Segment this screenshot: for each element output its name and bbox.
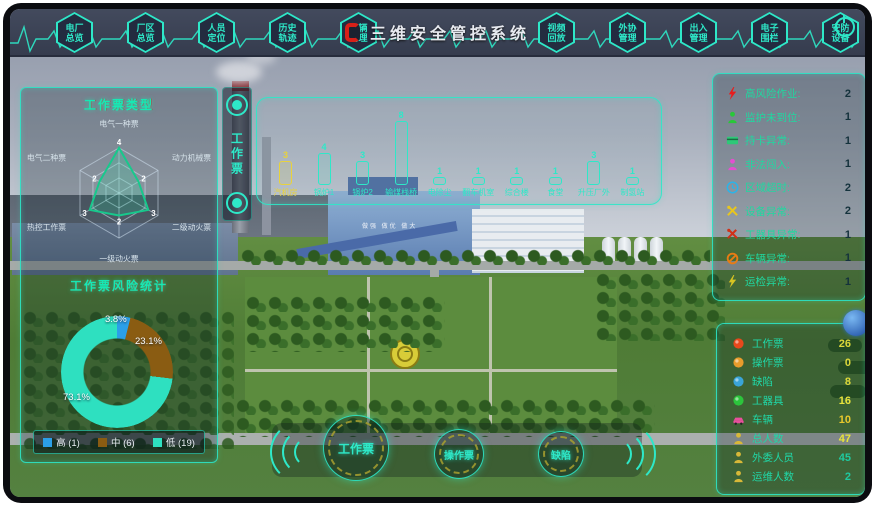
nav-item-left-4[interactable]: 车辆管理: [340, 12, 377, 53]
globe-icon: [843, 310, 865, 336]
nav-item-label: 人员: [207, 23, 225, 33]
risk-donut-chart: 3.8% 23.1% 73.1%: [61, 316, 173, 428]
radar-value: 3: [82, 209, 87, 218]
radar-value: 2: [141, 175, 146, 184]
nav-item-label: 外协: [618, 23, 636, 33]
nav-item-label: 轨迹: [278, 33, 296, 43]
legend-label: 中 (6): [111, 435, 135, 449]
nav-item-inner: 车辆管理: [342, 14, 375, 51]
radar-axis-label: 动力机械票: [172, 153, 211, 163]
alarm-label: 工器具异常:: [745, 227, 800, 242]
dot-icon: [731, 356, 745, 370]
tools-icon: [725, 228, 739, 242]
bar-rect: [549, 177, 562, 185]
bar-rect: [510, 177, 523, 185]
radar-value: 3: [151, 209, 156, 218]
bar-value: 1: [498, 166, 535, 176]
tab-circle-icon: [226, 192, 248, 214]
alarm-row: 高风险作业:2: [725, 82, 855, 106]
area-bar-chart-panel: 3汽机房4锅炉13锅炉28输煤栈桥1电除尘1翻车机室1综合楼1食堂3升压厂外1制…: [256, 97, 662, 205]
tab-label: 工作票: [229, 132, 246, 177]
alarm-row: 设备异常:2: [725, 200, 855, 224]
nav-item-left-1[interactable]: 厂区总览: [127, 12, 164, 53]
stats-label: 操作票: [752, 355, 784, 370]
nav-item-inner: 出入管理: [682, 14, 715, 51]
legend-swatch: [153, 438, 162, 447]
bolt-icon: [725, 275, 739, 289]
bar-value: 1: [537, 166, 574, 176]
area-bar: 3汽机房: [267, 150, 304, 198]
alarm-count: 1: [845, 111, 855, 123]
nav-item-inner: 厂区总览: [129, 14, 162, 51]
person-icon: [725, 157, 739, 171]
nav-item-inner: 外协管理: [611, 14, 644, 51]
alarm-count: 1: [845, 135, 855, 147]
nav-item-inner: 电子围栏: [753, 14, 786, 51]
stats-count: 45: [839, 452, 855, 464]
stats-count: 26: [839, 338, 855, 350]
stats-label: 车辆: [752, 412, 773, 427]
alarm-row: 运检异常:1: [725, 270, 855, 294]
nav-item-right-1[interactable]: 外协管理: [609, 12, 646, 53]
stats-row: 运维人数2: [731, 467, 855, 486]
arc-decoration: [594, 423, 656, 485]
tab-circle-icon: [226, 94, 248, 116]
radar-value: 2: [117, 217, 122, 226]
nav-item-label: 管理: [689, 33, 707, 43]
dot-icon: [731, 375, 745, 389]
bar-value: 3: [344, 150, 381, 160]
nav-item-inner: 人员定位: [200, 14, 233, 51]
defect-button[interactable]: 缺陷: [538, 431, 584, 477]
alarm-row: 工器具异常:1: [725, 223, 855, 247]
area-bars: 3汽机房4锅炉13锅炉28输煤栈桥1电除尘1翻车机室1综合楼1食堂3升压厂外1制…: [267, 110, 651, 198]
tree-row: [245, 294, 445, 352]
legend-swatch: [43, 438, 52, 447]
alarm-label: 车辆异常:: [745, 251, 790, 266]
radar-value: 4: [117, 138, 122, 147]
stats-label: 工器具: [752, 393, 784, 408]
alarm-count: 1: [845, 252, 855, 264]
nav-left-group: 电厂总览厂区总览人员定位历史轨迹车辆管理: [56, 12, 377, 53]
alarm-row: 区域超时:2: [725, 176, 855, 200]
nav-item-inner: 历史轨迹: [271, 14, 304, 51]
area-bar: 1翻车机室: [460, 166, 497, 198]
power-icon[interactable]: [835, 17, 855, 37]
stats-label: 工作票: [752, 336, 784, 351]
tree-row: [240, 247, 710, 267]
bar-value: 1: [421, 166, 458, 176]
nav-item-right-3[interactable]: 电子围栏: [751, 12, 788, 53]
nav-item-right-0[interactable]: 视频回放: [538, 12, 575, 53]
alarm-label: 运检异常:: [745, 274, 790, 289]
site-stats-panel: 工作票26操作票0缺陷8工器具16车辆10总人数47外委人员45运维人数2: [716, 323, 865, 495]
alarm-label: 非法闯入:: [745, 157, 790, 172]
bar-rect: [279, 161, 292, 185]
legend-item-0: 高 (1): [43, 435, 80, 449]
area-bar: 3升压厂外: [575, 150, 612, 198]
nav-item-inner: 电厂总览: [58, 14, 91, 51]
stats-row: 工作票26: [731, 334, 855, 353]
nav-item-label: 历史: [278, 23, 296, 33]
radar-axis-label: 电气二种票: [27, 153, 66, 163]
bar-label: 综合楼: [498, 187, 535, 198]
person-icon: [731, 470, 745, 484]
bar-label: 锅炉2: [344, 187, 381, 198]
nav-item-label: 出入: [689, 23, 707, 33]
legend-item-2: 低 (19): [153, 435, 195, 449]
alarm-count: 2: [845, 205, 855, 217]
alarm-count: 2: [845, 182, 855, 194]
stats-row: 车辆10: [731, 410, 855, 429]
alarm-count: 1: [845, 276, 855, 288]
stats-label: 缺陷: [752, 374, 773, 389]
radar-title: 工作票类型: [21, 96, 217, 113]
bar-label: 食堂: [537, 187, 574, 198]
bar-rect: [318, 153, 331, 185]
alarm-status-panel: 高风险作业:2监护未到位:1持卡异常:1非法闯入:1区域超时:2设备异常:2工器…: [712, 73, 865, 301]
dot-icon: [731, 394, 745, 408]
nav-item-label: 管理: [349, 33, 367, 43]
bar-rect: [356, 161, 369, 185]
risk-legend: 高 (1)中 (6)低 (19): [33, 430, 205, 454]
stats-row: 缺陷8: [731, 372, 855, 391]
donut-percent-low: 73.1%: [63, 392, 90, 403]
person-icon: [731, 432, 745, 446]
nav-item-inner: 视频回放: [540, 14, 573, 51]
stats-count: 8: [845, 376, 855, 388]
stats-label: 运维人数: [752, 469, 794, 484]
alarm-label: 设备异常:: [745, 204, 790, 219]
person-icon: [725, 110, 739, 124]
dot-icon: [731, 337, 745, 351]
nav-item-left-3[interactable]: 历史轨迹: [269, 12, 306, 53]
stats-row: 外委人员45: [731, 448, 855, 467]
work-ticket-panel: 工作票类型 423232电气一种票动力机械票二级动火票一级动火票热控工作票电气二…: [20, 87, 218, 463]
area-bar: 4锅炉1: [306, 142, 343, 198]
building-slogan: 做强 做优 做大: [362, 221, 417, 230]
bar-value: 4: [306, 142, 343, 152]
nav-item-label: 管理: [618, 33, 636, 43]
radar-axis-label: 热控工作票: [27, 222, 66, 232]
stats-label: 总人数: [752, 431, 784, 446]
alarm-count: 1: [845, 229, 855, 241]
stats-count: 16: [839, 395, 855, 407]
area-bar: 8输煤栈桥: [383, 110, 420, 198]
work-ticket-button[interactable]: 工作票: [323, 415, 389, 481]
car-icon: [731, 413, 745, 427]
bar-value: 8: [383, 110, 420, 120]
nav-item-label: 定位: [207, 33, 225, 43]
alarm-label: 高风险作业:: [745, 86, 800, 101]
bar-label: 电除尘: [421, 187, 458, 198]
area-bar: 1综合楼: [498, 166, 535, 198]
bolt-icon: [725, 87, 739, 101]
radar-axis-label: 一级动火票: [99, 254, 138, 264]
alarm-label: 监护未到位:: [745, 110, 800, 125]
alarm-row: 车辆异常:1: [725, 247, 855, 271]
donut-percent-medium: 23.1%: [135, 336, 162, 347]
bar-label: 制氢站: [614, 187, 651, 198]
bar-label: 升压厂外: [575, 187, 612, 198]
bar-label: 汽机房: [267, 187, 304, 198]
stats-count: 10: [839, 414, 855, 426]
stats-count: 47: [839, 433, 855, 445]
button-label: 缺陷: [551, 447, 571, 462]
nav-item-left-2[interactable]: 人员定位: [198, 12, 235, 53]
alarm-label: 持卡异常:: [745, 133, 790, 148]
bar-rect: [395, 121, 408, 185]
button-label: 操作票: [444, 447, 474, 462]
operation-ticket-button[interactable]: 操作票: [434, 429, 484, 479]
nav-item-left-0[interactable]: 电厂总览: [56, 12, 93, 53]
donut-title: 工作票风险统计: [21, 277, 217, 294]
legend-label: 高 (1): [56, 435, 80, 449]
alarm-row: 监护未到位:1: [725, 106, 855, 130]
clock-icon: [725, 181, 739, 195]
top-nav-bar: 电厂总览厂区总览人员定位历史轨迹车辆管理 三维安全管控系统 视频回放外协管理出入…: [10, 9, 865, 57]
donut-ring: [61, 316, 173, 428]
stats-label: 外委人员: [752, 450, 794, 465]
nav-item-label: 电厂: [65, 23, 83, 33]
work-ticket-type-radar-chart: 423232电气一种票动力机械票二级动火票一级动火票热控工作票电气二种票: [21, 113, 217, 269]
donut-percent-high: 3.8%: [105, 314, 127, 325]
stats-row: 总人数47: [731, 429, 855, 448]
radar-axis-label: 电气一种票: [99, 118, 138, 128]
nav-item-label: 视频: [547, 23, 565, 33]
stats-count: 0: [845, 357, 855, 369]
area-bar: 1制氢站: [614, 166, 651, 198]
bar-label: 输煤栈桥: [383, 187, 420, 198]
nav-item-right-2[interactable]: 出入管理: [680, 12, 717, 53]
legend-item-1: 中 (6): [98, 435, 135, 449]
nav-item-label: 车辆: [349, 23, 367, 33]
bar-rect: [472, 177, 485, 185]
button-label: 工作票: [338, 440, 374, 457]
bar-label: 翻车机室: [460, 187, 497, 198]
area-bar: 3锅炉2: [344, 150, 381, 198]
area-bar: 1食堂: [537, 166, 574, 198]
alarm-row: 非法闯入:1: [725, 153, 855, 177]
bar-label: 锅炉1: [306, 187, 343, 198]
nav-right-group: 视频回放外协管理出入管理电子围栏安防设备: [538, 12, 859, 53]
nav-item-label: 回放: [547, 33, 565, 43]
app-frame: 做强 做优 做大 电厂总览厂区总览人员定位历史轨迹车辆管理 三维安全管控系统 视…: [3, 3, 872, 503]
nav-item-label: 总览: [136, 33, 154, 43]
bar-rect: [587, 161, 600, 185]
app-window: 做强 做优 做大 电厂总览厂区总览人员定位历史轨迹车辆管理 三维安全管控系统 视…: [10, 9, 865, 497]
stats-count: 2: [845, 471, 855, 483]
legend-swatch: [98, 438, 107, 447]
bar-value: 1: [614, 166, 651, 176]
alarm-count: 2: [845, 88, 855, 100]
stats-row: 工器具16: [731, 391, 855, 410]
bar-rect: [433, 177, 446, 185]
person-icon: [731, 451, 745, 465]
alarm-row: 持卡异常:1: [725, 129, 855, 153]
radar-value: 2: [92, 175, 97, 184]
bar-value: 1: [460, 166, 497, 176]
tools-icon: [725, 204, 739, 218]
nav-item-label: 总览: [65, 33, 83, 43]
bar-value: 3: [575, 150, 612, 160]
legend-label: 低 (19): [166, 435, 195, 449]
nav-item-label: 电子: [760, 23, 778, 33]
alarm-label: 区域超时:: [745, 180, 790, 195]
ban-icon: [725, 251, 739, 265]
tree-row: [595, 271, 725, 341]
stats-row: 操作票0: [731, 353, 855, 372]
work-ticket-tab[interactable]: 工作票: [222, 87, 252, 221]
bar-value: 3: [267, 150, 304, 160]
nav-item-label: 围栏: [760, 33, 778, 43]
radar-axis-label: 二级动火票: [172, 222, 211, 232]
bar-rect: [626, 177, 639, 185]
area-bar: 1电除尘: [421, 166, 458, 198]
nav-item-label: 厂区: [136, 23, 154, 33]
alarm-count: 1: [845, 158, 855, 170]
card-icon: [725, 134, 739, 148]
